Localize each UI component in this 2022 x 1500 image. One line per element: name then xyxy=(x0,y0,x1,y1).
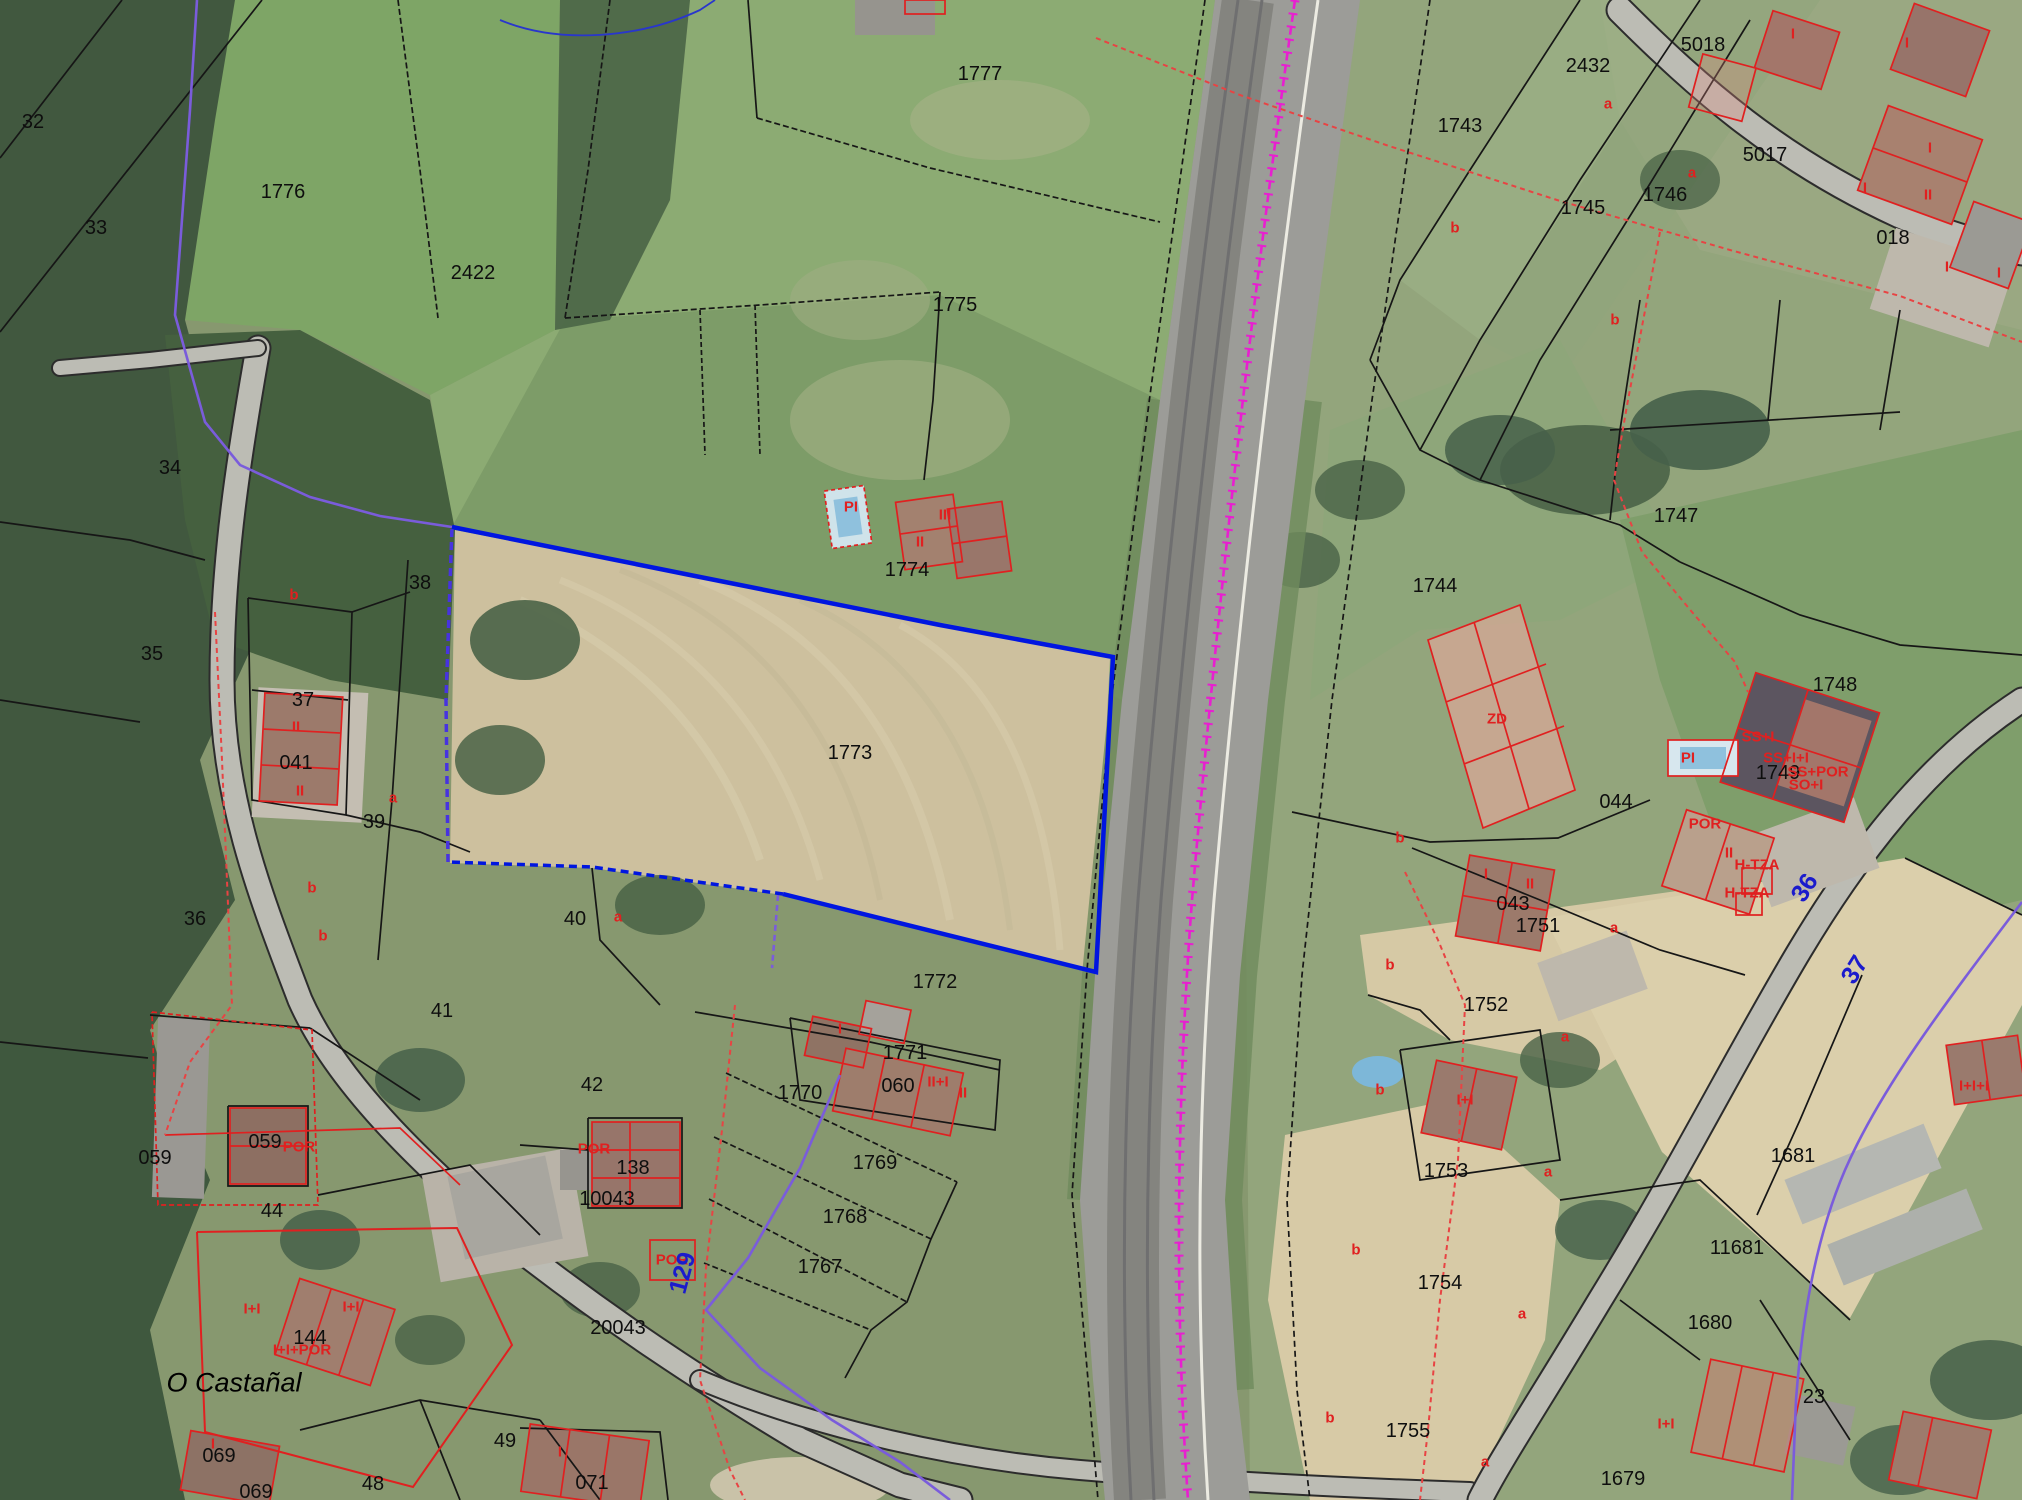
aerial-map-canvas[interactable] xyxy=(0,0,2022,1500)
cadastral-map-viewport[interactable]: 3233343536373839404142444849177624221777… xyxy=(0,0,2022,1500)
